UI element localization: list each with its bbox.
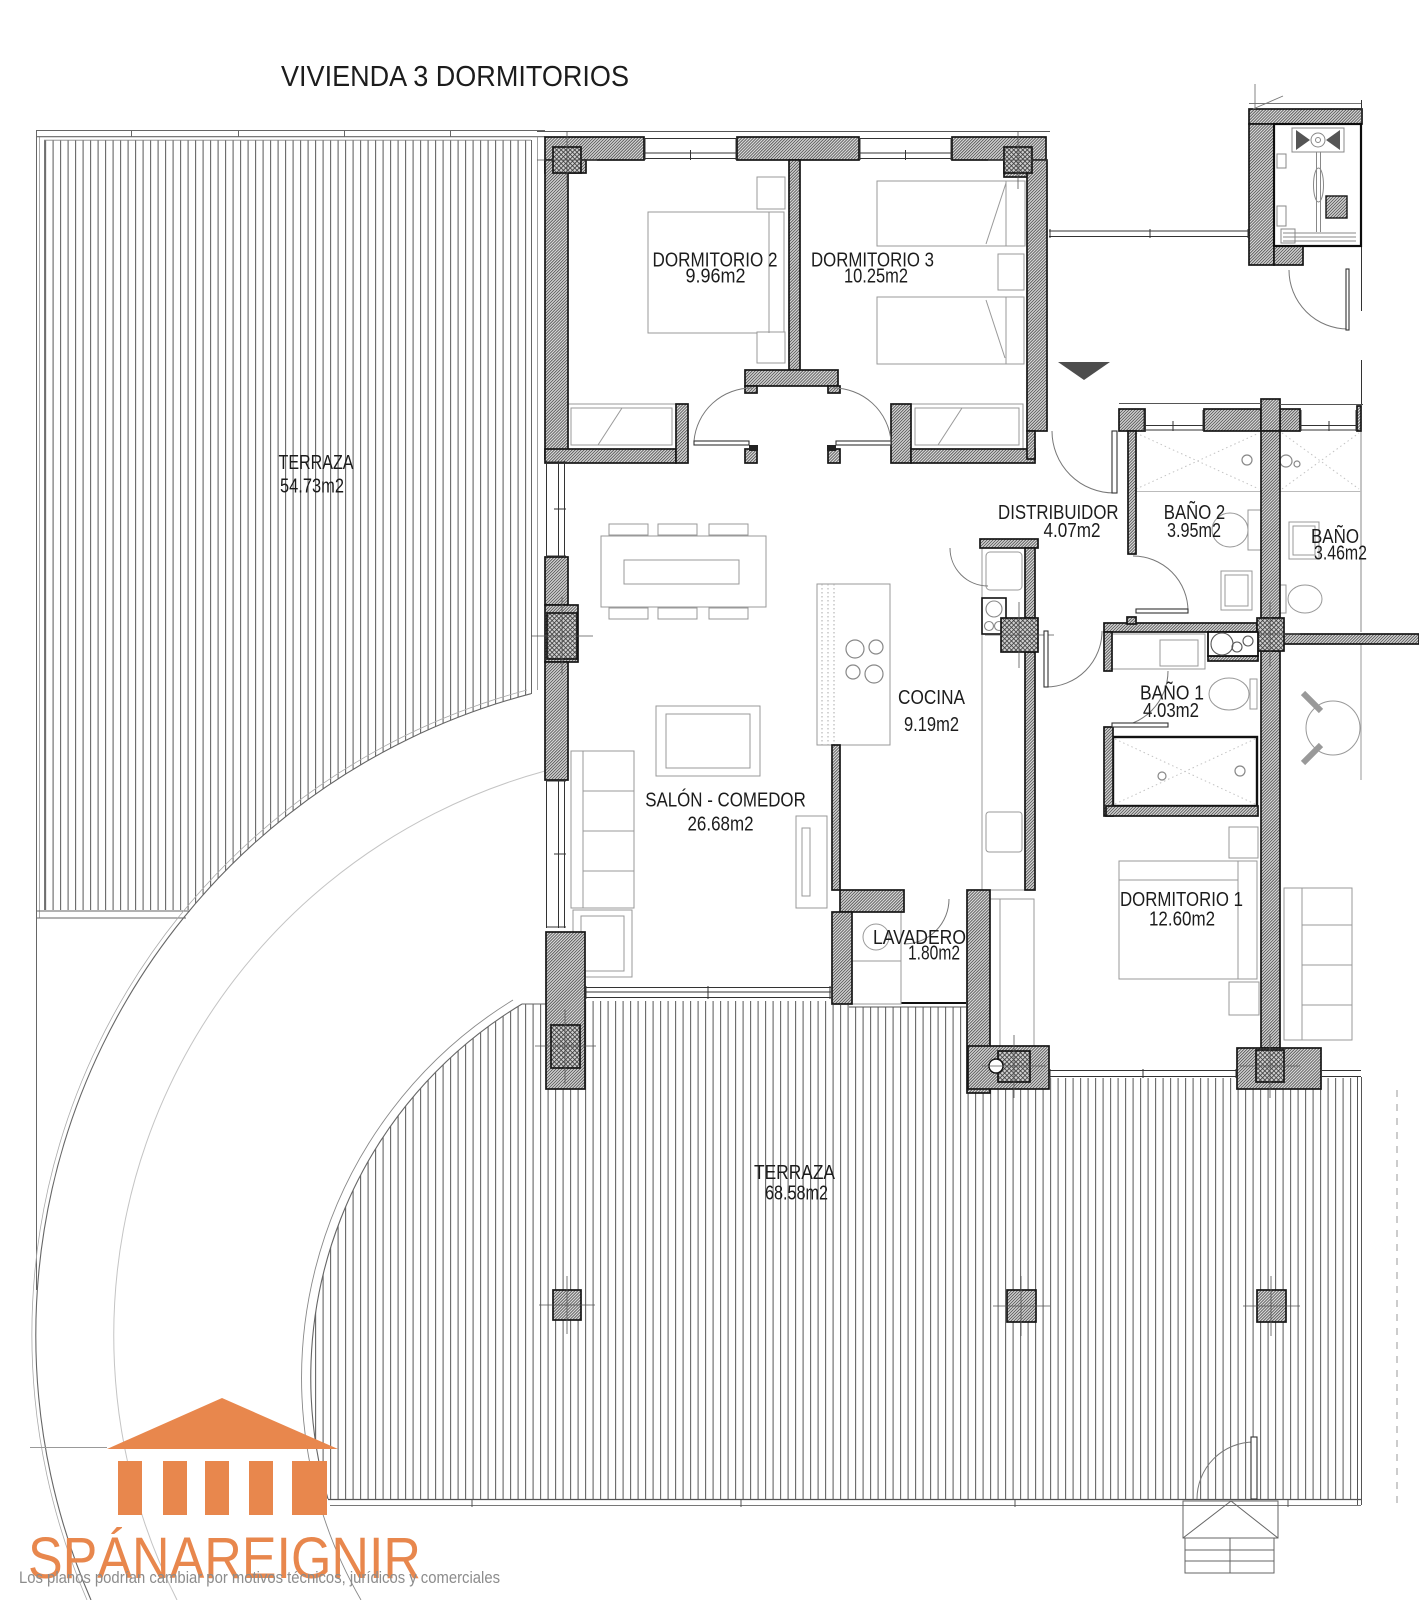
svg-text:TERRAZA: TERRAZA xyxy=(279,451,354,474)
svg-text:10.25m2: 10.25m2 xyxy=(844,265,908,288)
svg-text:54.73m2: 54.73m2 xyxy=(280,475,344,498)
svg-text:COCINA: COCINA xyxy=(898,686,965,709)
svg-text:9.96m2: 9.96m2 xyxy=(686,265,746,288)
svg-text:12.60m2: 12.60m2 xyxy=(1149,908,1215,931)
svg-text:Los planos podrían cambiar por: Los planos podrían cambiar por motivos t… xyxy=(19,1568,500,1587)
svg-text:3.95m2: 3.95m2 xyxy=(1167,519,1221,542)
svg-text:68.58m2: 68.58m2 xyxy=(765,1182,828,1205)
svg-text:SALÓN - COMEDOR: SALÓN - COMEDOR xyxy=(645,789,806,812)
svg-text:3.46m2: 3.46m2 xyxy=(1314,542,1367,565)
svg-text:4.03m2: 4.03m2 xyxy=(1143,699,1199,722)
svg-text:1.80m2: 1.80m2 xyxy=(908,942,960,965)
svg-text:9.19m2: 9.19m2 xyxy=(904,713,959,736)
svg-text:4.07m2: 4.07m2 xyxy=(1044,519,1101,542)
svg-text:VIVIENDA 3 DORMITORIOS: VIVIENDA 3 DORMITORIOS xyxy=(281,61,629,93)
svg-text:26.68m2: 26.68m2 xyxy=(688,813,754,836)
